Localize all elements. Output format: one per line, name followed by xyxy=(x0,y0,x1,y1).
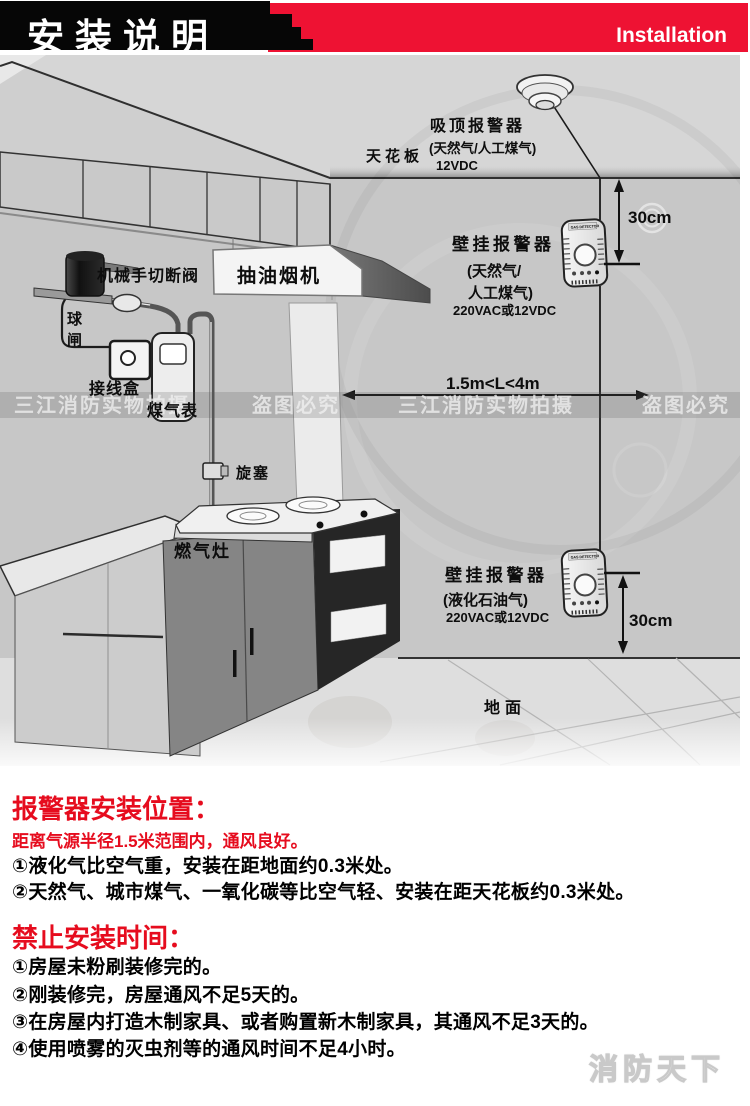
section1-item-2: ②天然气、城市煤气、一氧化碳等比空气轻、安装在距天花板约0.3米处。 xyxy=(12,877,635,904)
cutoff-valve-label: 机械手切断阀 xyxy=(97,266,199,285)
section2-heading: 禁止安装时间： xyxy=(12,918,194,955)
detector-sensor-window xyxy=(574,574,596,596)
detector-sensor-window xyxy=(574,244,596,266)
junction-box-label: 接线盒 xyxy=(89,379,140,398)
watermark-text: 盗图必究 xyxy=(252,393,340,417)
stove-knob xyxy=(317,522,324,529)
ceiling-alarm-power: 12VDC xyxy=(436,158,479,173)
ball-valve-label-1: 球 xyxy=(67,310,83,328)
section1-item-1: ①液化气比空气重，安装在距地面约0.3米处。 xyxy=(12,851,403,878)
wall-alarm-device-bottom: GAS DETECTOR xyxy=(561,549,607,617)
section2-item-1: ①房屋未粉刷装修完的。 xyxy=(12,952,221,979)
section2-item-3: ③在房屋内打造木制家具、或者购置新木制家具，其通风不足3天的。 xyxy=(12,1007,599,1034)
stove-burner xyxy=(227,508,279,524)
section2-item-4: ④使用喷雾的灭虫剂等的通风时间不足4小时。 xyxy=(12,1034,406,1061)
wall-alarm-bottom-title: 壁挂报警器 xyxy=(445,565,548,585)
wall-alarm-top-subtitle1: (天然气/ xyxy=(467,262,522,280)
section2-item-2: ②刚装修完，房屋通风不足5天的。 xyxy=(12,980,309,1007)
ceiling-alarm-title: 吸顶报警器 xyxy=(430,116,525,135)
page-title-chinese: 安装说明 xyxy=(27,7,219,61)
range-hood-label: 抽油烟机 xyxy=(237,264,321,287)
distance-label-top: 30cm xyxy=(628,208,671,227)
ball-valve-label-2: 闸 xyxy=(67,331,82,349)
ball-valve-body xyxy=(113,295,141,312)
watermark-text: 盗图必究 xyxy=(642,393,730,417)
section1-heading: 报警器安装位置： xyxy=(12,789,220,826)
range-label: 1.5m<L<4m xyxy=(446,374,540,393)
stove-burner xyxy=(286,497,340,513)
section1-subheading: 距离气源半径1.5米范围内，通风良好。 xyxy=(12,827,308,852)
gas-meter-label: 煤气表 xyxy=(147,401,198,420)
header-banner: 安装说明 Installation xyxy=(0,0,750,55)
page-title-english: Installation xyxy=(616,24,727,48)
ground-label: 地面 xyxy=(484,698,526,717)
plug-valve-label: 旋塞 xyxy=(235,464,270,482)
ceiling-alarm-subtitle: (天然气/人工煤气) xyxy=(429,140,536,156)
junction-box xyxy=(110,341,150,379)
wall-alarm-bottom-power: 220VAC或12VDC xyxy=(446,610,550,625)
cabinet-handle xyxy=(250,628,254,655)
wall-alarm-device-top: GAS DETECTOR xyxy=(561,219,607,287)
valve-motor-top xyxy=(66,251,104,261)
distance-label-bottom: 30cm xyxy=(629,611,672,630)
ceiling-label: 天花板 xyxy=(366,147,423,165)
installation-diagram: GAS DETECTOR GAS DETECTOR xyxy=(0,55,740,766)
watermark-text: 三江消防实物拍摄 xyxy=(398,393,574,417)
footer-watermark: 消防天下 xyxy=(589,1046,725,1088)
stove-knob xyxy=(361,511,368,518)
wall-alarm-top-power: 220VAC或12VDC xyxy=(453,303,557,318)
wall-alarm-top-title: 壁挂报警器 xyxy=(452,234,555,254)
drawer-handle xyxy=(330,535,385,573)
cabinet-handle xyxy=(233,650,237,677)
wall-alarm-top-subtitle2: 人工煤气) xyxy=(468,284,533,302)
gas-stove-label: 燃气灶 xyxy=(174,541,231,561)
wall-alarm-bottom-subtitle: (液化石油气) xyxy=(443,591,528,609)
